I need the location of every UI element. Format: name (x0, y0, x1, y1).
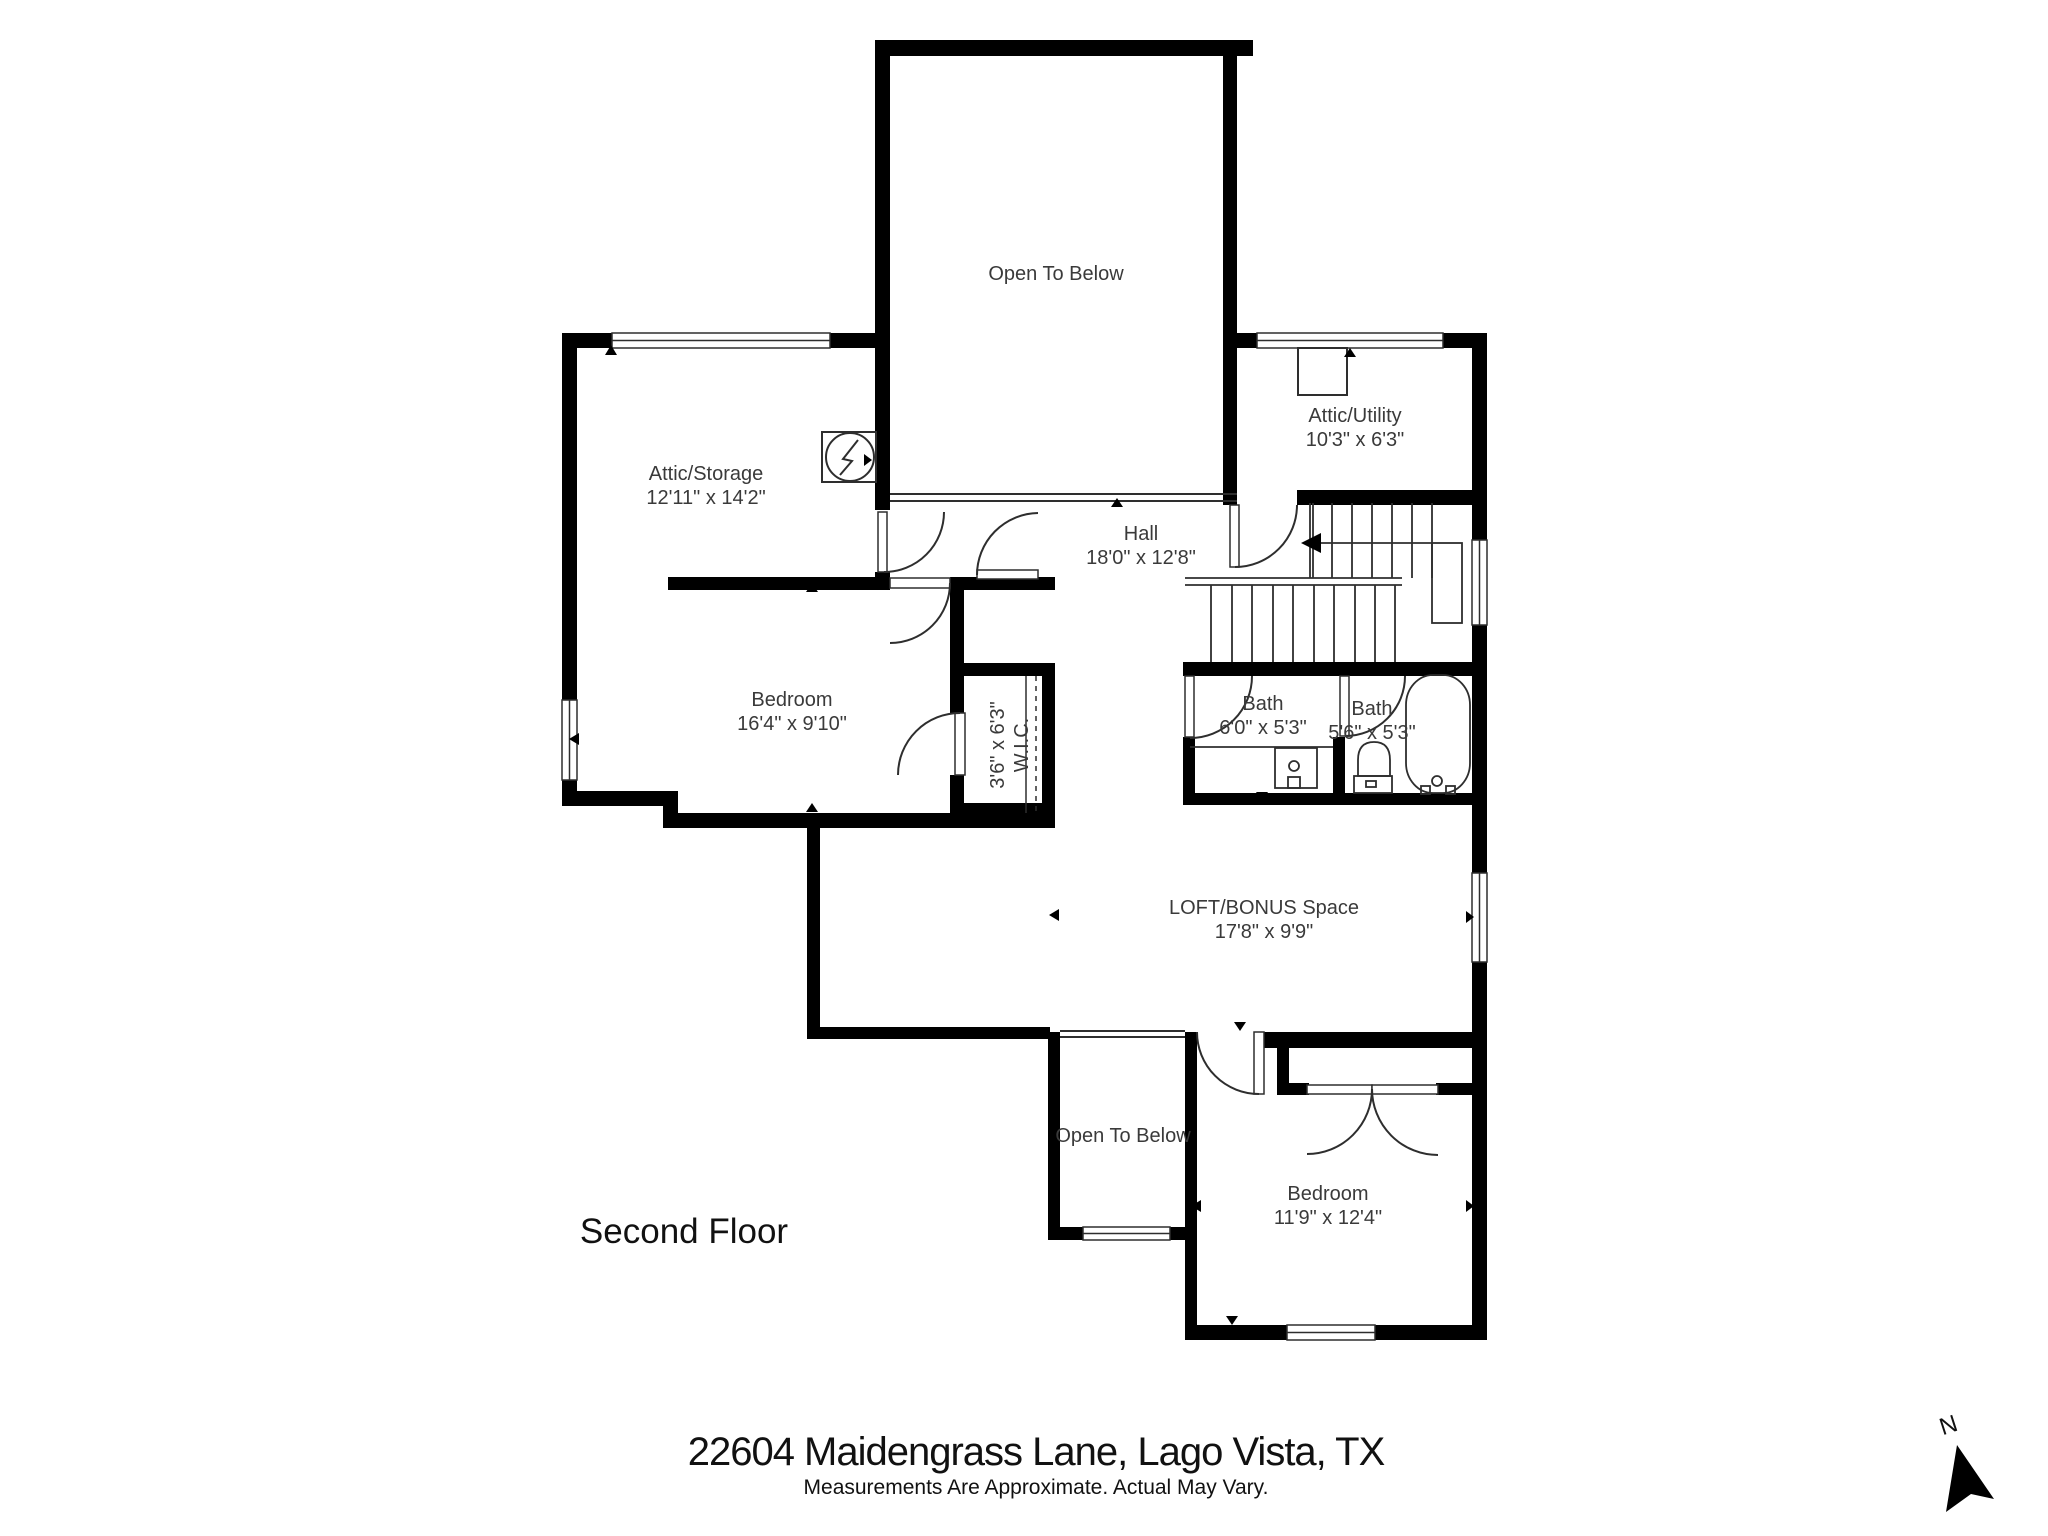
room-label-loft-bonus: LOFT/BONUS Space 17'8" x 9'9" (1169, 896, 1359, 944)
room-label-bath-2: Bath 5'6" x 5'3" (1328, 697, 1415, 745)
room-label-open-to-below-bottom: Open To Below (1055, 1124, 1190, 1148)
floor-title: Second Floor (580, 1212, 788, 1252)
stairs-icon (1185, 503, 1462, 662)
window (1472, 873, 1487, 962)
door-attic-storage (878, 512, 944, 572)
utility-unit-icon (1298, 348, 1347, 395)
north-arrow-icon (1946, 1445, 1994, 1512)
room-label-attic-storage: Attic/Storage 12'11" x 14'2" (646, 462, 765, 510)
stairs-direction-arrowhead (1301, 533, 1321, 553)
window (612, 333, 830, 348)
room-label-bath-1: Bath 6'0" x 5'3" (1219, 692, 1306, 740)
door-wic (898, 713, 965, 775)
disclaimer-text: Measurements Are Approximate. Actual May… (804, 1476, 1269, 1500)
room-label-bedroom-left: Bedroom 16'4" x 9'10" (737, 688, 847, 736)
door-attic-utility (1230, 505, 1297, 567)
room-label-attic-utility: Attic/Utility 10'3" x 6'3" (1306, 404, 1405, 452)
room-label-hall: Hall 18'0" x 12'8" (1086, 522, 1196, 570)
room-label-bedroom-bottom: Bedroom 11'9" x 12'4" (1274, 1182, 1382, 1230)
door-bedroom-bottom (1197, 1032, 1264, 1094)
window (1472, 540, 1487, 625)
window (1257, 333, 1443, 348)
floor-plan-page: Open To Below Attic/Storage 12'11" x 14'… (0, 0, 2048, 1536)
door-hall-vestibule (977, 513, 1038, 579)
address-text: 22604 Maidengrass Lane, Lago Vista, TX (688, 1430, 1385, 1475)
room-label-wic: 3'6" x 6'3" W.I.C. (986, 701, 1034, 788)
door-bedroom-left (890, 578, 950, 643)
window (1083, 1227, 1170, 1240)
window (1287, 1325, 1375, 1340)
sink-vanity-icon (1190, 747, 1333, 788)
room-label-open-to-below-top: Open To Below (988, 262, 1123, 286)
double-door-closet (1307, 1085, 1438, 1155)
toilet-icon (1354, 742, 1392, 793)
